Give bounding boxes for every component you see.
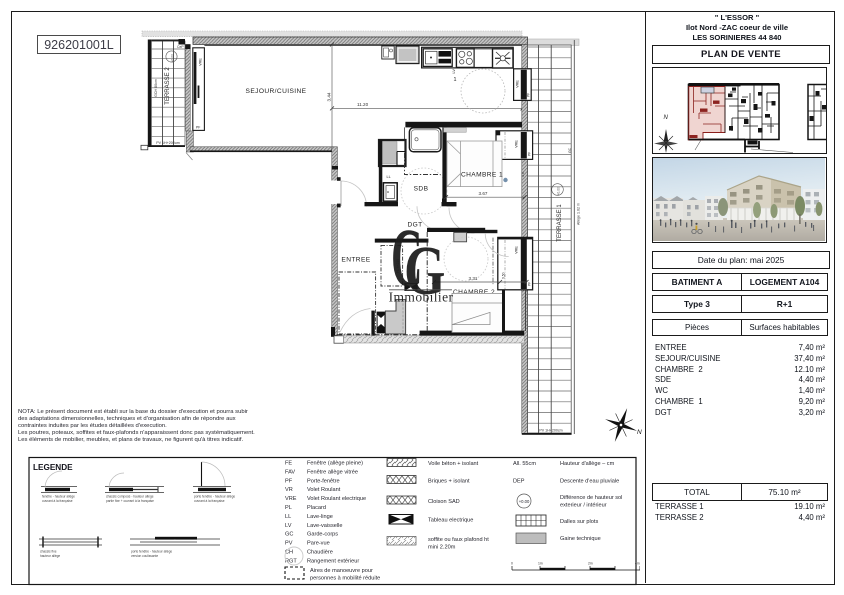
- svg-text:LEGENDE: LEGENDE: [33, 463, 73, 472]
- svg-text:Fenêtre allège vitrée: Fenêtre allège vitrée: [307, 469, 358, 475]
- svg-text:0.50: 0.50: [502, 272, 506, 279]
- svg-text:Rangement extérieur: Rangement extérieur: [307, 558, 359, 564]
- svg-text:VRE: VRE: [515, 80, 519, 88]
- svg-text:4m: 4m: [635, 562, 640, 566]
- svg-text:Immobilier: Immobilier: [389, 290, 454, 305]
- svg-text:CeP: CeP: [177, 45, 184, 49]
- svg-text:LV: LV: [285, 523, 292, 529]
- svg-text:VRE: VRE: [515, 246, 519, 254]
- svg-text:+0.00: +0.00: [556, 187, 560, 196]
- svg-text:TERRASSE 2: TERRASSE 2: [165, 67, 171, 105]
- svg-text:All. 55cm: All. 55cm: [513, 461, 536, 467]
- svg-text:Volet Roulant: Volet Roulant: [307, 487, 341, 493]
- svg-text:Différence de hauteur sol: Différence de hauteur sol: [560, 495, 622, 501]
- svg-text:VRE: VRE: [285, 496, 297, 502]
- svg-text:2m: 2m: [588, 562, 593, 566]
- svg-text:Gaine technique: Gaine technique: [560, 536, 601, 542]
- svg-text:Lave-linge: Lave-linge: [307, 514, 333, 520]
- svg-text:PF: PF: [527, 93, 531, 97]
- svg-text:SEJOUR/CUISINE: SEJOUR/CUISINE: [246, 88, 307, 95]
- svg-text:soffite ou faux plafond ht: soffite ou faux plafond ht: [428, 537, 489, 543]
- svg-text:Placard: Placard: [307, 505, 326, 511]
- svg-text:fenêtre - hauteur allège: fenêtre - hauteur allège: [42, 495, 75, 499]
- svg-text:PF: PF: [285, 478, 293, 484]
- svg-text:Fenêtre (allège pleine): Fenêtre (allège pleine): [307, 461, 363, 467]
- svg-text:GC: GC: [568, 147, 572, 153]
- svg-text:PF: PF: [528, 282, 532, 286]
- svg-text:PV: PV: [285, 541, 293, 547]
- svg-text:partie fixe + ouvrant à la fra: partie fixe + ouvrant à la française: [106, 499, 154, 503]
- svg-text:Lave-vaisselle: Lave-vaisselle: [307, 523, 342, 529]
- svg-text:Pare-vue: Pare-vue: [307, 541, 330, 547]
- svg-text:Descente d'eau pluviale: Descente d'eau pluviale: [560, 479, 619, 485]
- svg-text:mini 2.20m: mini 2.20m: [428, 545, 456, 551]
- svg-text:Tableau electrique: Tableau electrique: [428, 518, 473, 524]
- svg-text:Garde-corps: Garde-corps: [307, 532, 338, 538]
- svg-text:3.44: 3.44: [327, 92, 332, 101]
- svg-text:ouvrant à la française: ouvrant à la française: [194, 499, 225, 503]
- svg-text:chassis fixe: chassis fixe: [40, 550, 57, 554]
- svg-text:FE: FE: [285, 461, 292, 467]
- svg-text:VRE: VRE: [515, 140, 519, 148]
- svg-text:TERRASSE 1: TERRASSE 1: [557, 204, 563, 242]
- svg-text:hauteur allège: hauteur allège: [40, 554, 60, 558]
- svg-text:PV 1H+200um: PV 1H+200um: [156, 141, 179, 145]
- svg-text:VR: VR: [285, 487, 293, 493]
- svg-text:chassis composé - hauteur allè: chassis composé - hauteur allège: [106, 495, 154, 499]
- svg-text:Allège 1.02 m: Allège 1.02 m: [577, 203, 581, 225]
- svg-text:exterieur / intérieur: exterieur / intérieur: [560, 503, 607, 509]
- svg-text:GC: GC: [285, 532, 293, 538]
- svg-text:FAV: FAV: [285, 469, 295, 475]
- svg-text:Hauteur d'allège – cm: Hauteur d'allège – cm: [560, 461, 615, 467]
- svg-text:N: N: [637, 429, 642, 436]
- svg-text:ouvrant à la française: ouvrant à la française: [42, 499, 73, 503]
- svg-text:ENTREE: ENTREE: [341, 257, 370, 264]
- svg-text:0: 0: [511, 562, 513, 566]
- svg-text:CH: CH: [285, 550, 293, 556]
- svg-text:version coulissante: version coulissante: [131, 554, 158, 558]
- svg-text:+0.00: +0.00: [519, 499, 530, 504]
- svg-text:LL: LL: [387, 175, 391, 179]
- svg-text:3.67: 3.67: [479, 191, 488, 196]
- svg-text:3 6: 3 6: [521, 172, 525, 177]
- svg-text:SDB: SDB: [414, 185, 429, 192]
- svg-text:DEP: DEP: [513, 479, 525, 485]
- svg-text:VRE: VRE: [199, 58, 203, 66]
- svg-text:Dalles sur plots: Dalles sur plots: [560, 519, 598, 525]
- svg-text:PL: PL: [285, 505, 292, 511]
- svg-text:Briques + isolant: Briques + isolant: [428, 479, 470, 485]
- svg-text:GCH 80cm: GCH 80cm: [154, 79, 158, 97]
- svg-text:1: 1: [454, 77, 457, 83]
- svg-text:personnes à mobilité réduite: personnes à mobilité réduite: [310, 576, 380, 582]
- svg-text:Voile béton + isolant: Voile béton + isolant: [428, 461, 479, 467]
- svg-text:PF: PF: [196, 126, 200, 130]
- svg-text:Volet Roulant electrique: Volet Roulant electrique: [307, 496, 366, 502]
- svg-text:Aires de manoeuvre pour: Aires de manoeuvre pour: [310, 568, 373, 574]
- svg-text:CHAMBRE 1: CHAMBRE 1: [461, 171, 503, 178]
- svg-text:Porte-fenêtre: Porte-fenêtre: [307, 478, 340, 484]
- svg-text:LV: LV: [452, 69, 456, 74]
- svg-text:Chaudière: Chaudière: [307, 550, 333, 556]
- svg-text:1m: 1m: [538, 562, 543, 566]
- svg-text:PF: PF: [528, 152, 532, 156]
- svg-text:N: N: [664, 115, 669, 121]
- svg-text:PV 1H+200cm: PV 1H+200cm: [539, 429, 562, 433]
- svg-text:3.31: 3.31: [469, 276, 478, 281]
- svg-text:porte fenêtre - hauteur allège: porte fenêtre - hauteur allège: [194, 495, 235, 499]
- svg-text:porte fenêtre - hauteur allège: porte fenêtre - hauteur allège: [131, 550, 172, 554]
- svg-text:Cloison SAD: Cloison SAD: [428, 499, 460, 505]
- svg-text:11.20: 11.20: [357, 102, 369, 107]
- svg-text:LL: LL: [285, 514, 291, 520]
- svg-text:+0.00: +0.00: [170, 54, 174, 63]
